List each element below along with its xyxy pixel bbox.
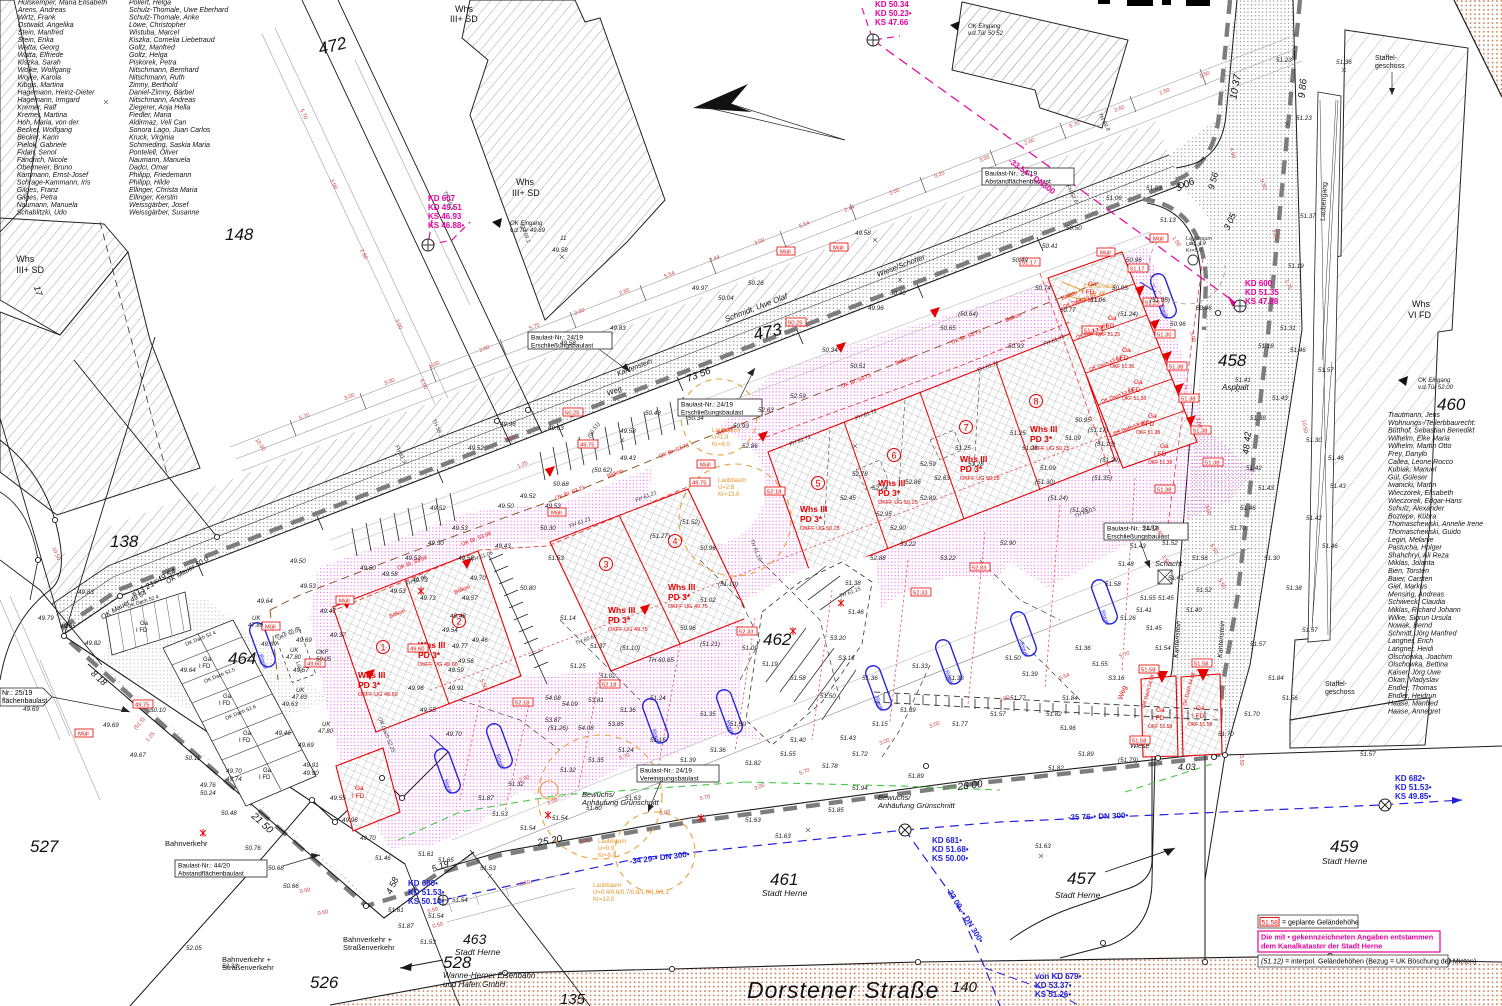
svg-text:I FD: I FD	[199, 664, 211, 670]
svg-text:KD 681•: KD 681•	[932, 836, 962, 845]
svg-text:PD 3*: PD 3*	[358, 680, 381, 690]
svg-text:Pielok, Gabriele: Pielok, Gabriele	[17, 142, 67, 149]
svg-text:Becker, Karin: Becker, Karin	[17, 135, 59, 142]
svg-text:Goltz, Helga: Goltz, Helga	[129, 52, 168, 59]
svg-text:Frey, Danylo: Frey, Danylo	[1388, 451, 1427, 458]
svg-text:50.48: 50.48	[645, 410, 661, 417]
svg-text:KS 50.14•: KS 50.14•	[408, 897, 444, 906]
svg-text:51.53: 51.53	[548, 555, 564, 562]
svg-text:Kibgis, Martina: Kibgis, Martina	[17, 82, 63, 89]
svg-text:51.84: 51.84	[1268, 675, 1284, 682]
svg-text:51.46: 51.46	[1240, 505, 1256, 512]
svg-text:457: 457	[1067, 869, 1096, 888]
svg-text:Miklas, Richard Johann: Miklas, Richard Johann	[1388, 607, 1461, 614]
svg-text:Stein, Manfred: Stein, Manfred	[18, 30, 65, 37]
svg-text:49.50: 49.50	[428, 540, 444, 547]
svg-text:52.33: 52.33	[739, 630, 754, 636]
svg-text:KD 600: KD 600	[1245, 279, 1273, 288]
svg-text:Olschowka, Bettina: Olschowka, Bettina	[1388, 662, 1448, 669]
svg-text:51.39: 51.39	[900, 707, 916, 714]
svg-text:49.46: 49.46	[472, 637, 488, 644]
svg-text:50.25: 50.25	[565, 411, 580, 417]
svg-text:51.36: 51.36	[1336, 59, 1352, 66]
svg-text:flächenbaulast: flächenbaulast	[2, 698, 47, 705]
svg-text:Daniel-Zimny, Bärbel: Daniel-Zimny, Bärbel	[129, 90, 194, 97]
svg-text:51.61: 51.61	[388, 907, 404, 914]
svg-text:49.70: 49.70	[446, 731, 462, 738]
svg-text:I FD: I FD	[136, 628, 148, 634]
svg-text:51.09: 51.09	[1040, 465, 1056, 472]
svg-text:Müll: Müll	[78, 732, 89, 738]
svg-text:Philipp, Hilde: Philipp, Hilde	[129, 180, 170, 187]
svg-text:Kiszka, Sarah: Kiszka, Sarah	[18, 60, 61, 67]
svg-text:TH 60.65: TH 60.65	[648, 657, 674, 664]
svg-text:Ga: Ga	[223, 694, 232, 700]
svg-text:III+ SD: III+ SD	[512, 188, 540, 198]
svg-text:53.81: 53.81	[588, 697, 604, 704]
svg-text:11: 11	[560, 235, 567, 242]
svg-text:49.53: 49.53	[390, 588, 406, 595]
svg-text:47.80: 47.80	[286, 655, 302, 661]
svg-text:Whs III: Whs III	[800, 504, 827, 514]
svg-text:S3.16: S3.16	[838, 655, 855, 662]
svg-text:51.32: 51.32	[560, 767, 576, 774]
svg-text:51.35: 51.35	[588, 757, 604, 764]
svg-text:Ga: Ga	[1108, 315, 1117, 322]
svg-text:463: 463	[463, 931, 487, 947]
svg-text:464: 464	[228, 649, 256, 668]
svg-text:52.86: 52.86	[905, 479, 921, 486]
svg-text:140: 140	[952, 979, 978, 996]
svg-text:49.52: 49.52	[468, 445, 484, 452]
svg-text:52.90: 52.90	[1000, 540, 1016, 547]
svg-text:47.80: 47.80	[318, 729, 334, 735]
svg-text:Naumann, Manuela: Naumann, Manuela	[17, 202, 78, 209]
svg-text:51.84: 51.84	[1062, 695, 1078, 702]
svg-text:51.82: 51.82	[1048, 765, 1064, 772]
svg-text:VI FD: VI FD	[1408, 310, 1432, 320]
svg-text:51.57: 51.57	[1318, 367, 1334, 374]
svg-text:49.96: 49.96	[342, 817, 358, 824]
svg-text:Stadt Herne: Stadt Herne	[1322, 856, 1368, 866]
svg-text:51.96: 51.96	[1060, 725, 1076, 732]
svg-text:49.53: 49.53	[300, 583, 316, 590]
svg-text:Straßenverkehr: Straßenverkehr	[343, 943, 395, 952]
svg-text:Wilke, Sigrun Ursula: Wilke, Sigrun Ursula	[1388, 615, 1451, 622]
svg-text:(51.17): (51.17)	[1088, 427, 1108, 434]
svg-text:OKFF UG 50.25: OKFF UG 50.25	[878, 500, 918, 506]
svg-text:Anhäufung Grünschnitt: Anhäufung Grünschnitt	[877, 801, 956, 810]
svg-text:Wojke, Karola: Wojke, Karola	[18, 75, 62, 82]
svg-text:Wieczorek, Edgar-Hans: Wieczorek, Edgar-Hans	[1388, 498, 1462, 505]
svg-text:50.96: 50.96	[700, 545, 716, 552]
svg-text:50.48: 50.48	[221, 810, 237, 817]
svg-text:51.19: 51.19	[1288, 263, 1304, 270]
svg-text:(50.64): (50.64)	[958, 311, 978, 318]
svg-text:Langner, Erich: Langner, Erich	[1388, 638, 1433, 645]
svg-text:51.31: 51.31	[1280, 325, 1296, 332]
svg-text:51.87: 51.87	[478, 795, 494, 802]
svg-text:Müll: Müll	[700, 463, 711, 469]
svg-text:Schulz-Thomale, Anke: Schulz-Thomale, Anke	[129, 15, 199, 22]
svg-text:Endler, Thomas: Endler, Thomas	[1388, 685, 1438, 692]
svg-text:461: 461	[770, 870, 798, 889]
svg-text:51.41: 51.41	[1136, 607, 1152, 614]
svg-text:51.85: 51.85	[828, 807, 844, 814]
svg-text:Dorstener Straße: Dorstener Straße	[747, 977, 939, 1003]
svg-text:49.43: 49.43	[620, 455, 636, 462]
svg-text:Staffel-: Staffel-	[1375, 55, 1398, 62]
svg-text:49.54: 49.54	[442, 627, 458, 634]
svg-text:und Hafen GmbH: und Hafen GmbH	[443, 980, 505, 989]
svg-text:Stadt Herne: Stadt Herne	[762, 888, 808, 898]
svg-text:Müll: Müll	[833, 246, 844, 252]
svg-text:49.55: 49.55	[330, 795, 346, 802]
svg-text:51.15: 51.15	[872, 721, 888, 728]
svg-text:I FD: I FD	[259, 775, 271, 781]
svg-text:Schablitzki, Udo: Schablitzki, Udo	[17, 210, 67, 217]
svg-text:Laubbaum: Laubbaum	[593, 883, 621, 889]
svg-text:49.70: 49.70	[226, 768, 242, 775]
svg-text:Baulast-Nr.: 44/20: Baulast-Nr.: 44/20	[178, 863, 230, 870]
svg-text:UK: UK	[290, 648, 299, 654]
svg-text:51.42: 51.42	[1306, 515, 1322, 522]
svg-text:OKF 51.30: OKF 51.30	[1110, 364, 1134, 370]
svg-text:50.93: 50.93	[733, 423, 749, 430]
svg-text:52.63: 52.63	[934, 475, 950, 482]
svg-text:KS 49.85•: KS 49.85•	[1395, 792, 1431, 801]
svg-text:Pastucha, Holger: Pastucha, Holger	[1388, 545, 1442, 552]
svg-text:51.36: 51.36	[1075, 645, 1091, 652]
svg-text:51.02: 51.02	[600, 673, 616, 680]
svg-text:Wilhelm, Elke Maria: Wilhelm, Elke Maria	[1388, 435, 1450, 442]
svg-text:OKFF UG 50.25: OKFF UG 50.25	[960, 476, 1000, 482]
svg-text:Vereinigungsbaulast: Vereinigungsbaulast	[640, 776, 699, 783]
svg-text:Miklas, Jolanta: Miklas, Jolanta	[1388, 560, 1434, 567]
svg-text:50.40: 50.40	[890, 290, 906, 297]
svg-text:49.96: 49.96	[408, 685, 424, 692]
svg-text:PD 3*: PD 3*	[800, 514, 823, 524]
svg-text:OKF 51.58: OKF 51.58	[1188, 722, 1212, 728]
svg-text:50.95: 50.95	[1075, 417, 1091, 424]
svg-text:KD 49.51: KD 49.51	[428, 203, 462, 212]
svg-text:51.43: 51.43	[1130, 543, 1146, 550]
svg-text:Pontelell, Oliver: Pontelell, Oliver	[129, 150, 179, 157]
svg-text:Aldirmaz, Veli Can: Aldirmaz, Veli Can	[128, 120, 186, 127]
svg-text:47.89: 47.89	[248, 623, 264, 629]
svg-text:51.78: 51.78	[822, 763, 838, 770]
svg-text:(51.27): (51.27)	[650, 533, 670, 540]
svg-text:50.93: 50.93	[1008, 343, 1024, 350]
svg-text:Kremer, Ralf: Kremer, Ralf	[17, 105, 57, 112]
svg-text:51.58: 51.58	[1105, 581, 1121, 588]
svg-text:50.65: 50.65	[940, 325, 956, 332]
svg-text:135: 135	[560, 991, 586, 1006]
svg-text:Whs III: Whs III	[608, 605, 635, 615]
svg-text:51.58: 51.58	[1194, 662, 1209, 668]
svg-text:U=0.4/0.6/0.7/0.8/1.0/1.0/1.1: U=0.4/0.6/0.7/0.8/1.0/1.0/1.1	[593, 890, 670, 896]
svg-text:Hoh, Maria, von der: Hoh, Maria, von der	[17, 120, 79, 127]
svg-text:52.05: 52.05	[186, 945, 202, 952]
svg-text:Ga: Ga	[203, 657, 212, 663]
svg-text:OKFF UG 49.75: OKFF UG 49.75	[668, 604, 708, 610]
svg-text:Gilges, Petra: Gilges, Petra	[17, 195, 58, 202]
svg-text:51.87: 51.87	[398, 923, 414, 930]
svg-text:50.05: 50.05	[316, 657, 332, 663]
svg-text:52.63: 52.63	[758, 407, 774, 414]
svg-text:49.43: 49.43	[495, 543, 511, 550]
svg-text:51.63: 51.63	[775, 833, 791, 840]
svg-text:(51.52): (51.52)	[680, 519, 700, 526]
svg-text:Kruck, Virginia: Kruck, Virginia	[129, 135, 174, 142]
svg-text:KS 46.88•: KS 46.88•	[428, 221, 464, 230]
svg-text:54.09: 54.09	[562, 701, 578, 708]
svg-text:(51.79): (51.79)	[1118, 757, 1138, 764]
svg-text:KD 680•: KD 680•	[408, 879, 438, 888]
svg-text:Ga: Ga	[263, 768, 272, 774]
svg-text:51.54: 51.54	[552, 815, 568, 822]
svg-text:52.33: 52.33	[222, 963, 238, 970]
svg-text:49.75: 49.75	[135, 703, 150, 709]
svg-text:Nowak, Bernd: Nowak, Bernd	[1388, 623, 1433, 630]
svg-text:Watta, Georg: Watta, Georg	[18, 45, 60, 52]
svg-text:51.30: 51.30	[1264, 555, 1280, 562]
svg-text:geschoss: geschoss	[1375, 63, 1405, 70]
svg-text:KD 51.53•: KD 51.53•	[408, 888, 445, 897]
svg-text:51.53: 51.53	[492, 811, 508, 818]
svg-text:51.77: 51.77	[1010, 695, 1026, 702]
svg-text:Dadci, Omar: Dadci, Omar	[129, 165, 169, 172]
svg-text:S3.16: S3.16	[1108, 675, 1125, 682]
svg-text:50.96: 50.96	[1126, 257, 1142, 264]
svg-text:Kr=12.0: Kr=12.0	[593, 897, 615, 903]
svg-text:52.45: 52.45	[840, 495, 856, 502]
svg-text:51.52: 51.52	[1162, 540, 1178, 547]
svg-text:51.42: 51.42	[1246, 465, 1262, 472]
svg-text:Piskorek, Petra: Piskorek, Petra	[129, 60, 177, 67]
svg-text:51.43: 51.43	[840, 735, 856, 742]
svg-text:49.63: 49.63	[282, 701, 298, 708]
svg-text:49.58: 49.58	[552, 247, 568, 254]
svg-text:51.36: 51.36	[710, 747, 726, 754]
svg-text:51.40: 51.40	[1186, 607, 1202, 614]
svg-text:(51.12) = interpol. Geländehöh: (51.12) = interpol. Geländehöhen (Bezug …	[1261, 959, 1476, 966]
svg-text:KD 51.35: KD 51.35	[1245, 288, 1279, 297]
svg-text:53.22: 53.22	[940, 555, 956, 562]
svg-text:49.69: 49.69	[103, 722, 119, 729]
svg-text:49.83: 49.83	[78, 589, 94, 596]
svg-text:Fidan, Senol: Fidan, Senol	[17, 150, 57, 157]
svg-text:49.77: 49.77	[452, 643, 468, 650]
svg-text:49.91: 49.91	[448, 685, 464, 692]
svg-text:(51.30): (51.30)	[1035, 479, 1055, 486]
svg-text:52.59: 52.59	[920, 461, 936, 468]
svg-text:49.74: 49.74	[226, 776, 242, 783]
svg-text:51.58: 51.58	[1132, 739, 1147, 745]
svg-text:Giel, Markus: Giel, Markus	[1388, 584, 1428, 591]
svg-text:UK: UK	[322, 722, 331, 728]
svg-text:50.24: 50.24	[200, 790, 216, 797]
svg-text:51.43: 51.43	[1258, 485, 1274, 492]
svg-text:51.55: 51.55	[780, 751, 796, 758]
svg-text:Callea, Leone Rocco: Callea, Leone Rocco	[1388, 459, 1453, 466]
svg-text:51.46: 51.46	[848, 609, 864, 616]
svg-text:50.96: 50.96	[1196, 305, 1212, 312]
svg-text:Kiszka, Cornelia Liebetraud: Kiszka, Cornelia Liebetraud	[129, 37, 216, 44]
svg-text:U=0.9: U=0.9	[598, 846, 615, 852]
svg-text:50.10: 50.10	[150, 707, 166, 714]
svg-text:5.50: 5.50	[1238, 755, 1244, 766]
svg-text:PD 3*: PD 3*	[1030, 434, 1053, 444]
svg-text:OKF: OKF	[316, 650, 329, 656]
svg-text:51.36: 51.36	[620, 707, 636, 714]
svg-text:KS 46.93: KS 46.93	[428, 212, 462, 221]
svg-text:51.45: 51.45	[1146, 625, 1162, 632]
svg-text:Legin, Melanie: Legin, Melanie	[1388, 537, 1434, 544]
svg-text:Ga: Ga	[1156, 707, 1165, 714]
svg-text:51.70: 51.70	[1244, 711, 1260, 718]
svg-text:51.38: 51.38	[1193, 429, 1208, 435]
svg-text:v.d.Tür 52.00: v.d.Tür 52.00	[1418, 385, 1454, 391]
svg-text:Bütthof, Sebastian Benedikt: Bütthof, Sebastian Benedikt	[1388, 428, 1475, 435]
svg-text:KS 50.00•: KS 50.00•	[932, 854, 968, 863]
svg-text:Nitschmann, Bernhard: Nitschmann, Bernhard	[129, 67, 200, 74]
svg-text:49.58: 49.58	[620, 428, 636, 435]
svg-text:50.25: 50.25	[788, 321, 803, 327]
svg-text:49.76: 49.76	[200, 782, 216, 789]
svg-text:51.38: 51.38	[1286, 585, 1302, 592]
svg-text:49.69: 49.69	[298, 742, 314, 749]
svg-text:Schiweck, Claudia: Schiweck, Claudia	[1388, 599, 1445, 606]
svg-text:51.70: 51.70	[1230, 525, 1246, 532]
svg-text:51.30: 51.30	[1157, 333, 1172, 339]
svg-text:49.67: 49.67	[130, 752, 146, 759]
svg-text:51.18: 51.18	[1258, 343, 1274, 350]
svg-text:Ga: Ga	[355, 785, 364, 792]
svg-text:51.56: 51.56	[1192, 555, 1208, 562]
svg-text:UK: UK	[296, 688, 305, 694]
svg-text:49.57: 49.57	[462, 595, 478, 602]
svg-text:I FD: I FD	[239, 738, 251, 744]
svg-text:(51.21): (51.21)	[700, 641, 720, 648]
svg-text:49.69: 49.69	[296, 637, 312, 644]
svg-text:I FD: I FD	[219, 701, 231, 707]
svg-text:Ga: Ga	[1134, 379, 1143, 386]
svg-text:(51.24): (51.24)	[1048, 495, 1068, 502]
svg-text:9 86: 9 86	[1297, 78, 1310, 99]
svg-text:OKFF UG 50.25: OKFF UG 50.25	[800, 526, 840, 532]
svg-text:UK: UK	[252, 616, 261, 622]
svg-text:49.58: 49.58	[382, 571, 398, 578]
svg-text:PD 3*: PD 3*	[608, 615, 631, 625]
svg-text:50.80: 50.80	[520, 585, 536, 592]
svg-text:Whs: Whs	[16, 254, 35, 264]
svg-text:49.46: 49.46	[275, 730, 291, 737]
svg-text:49.91: 49.91	[303, 762, 319, 769]
svg-text:Ga: Ga	[1160, 443, 1169, 450]
svg-text:Fiedler, Maria: Fiedler, Maria	[129, 112, 172, 119]
svg-text:49.52: 49.52	[430, 505, 446, 512]
svg-text:Weissgärber, Josef: Weissgärber, Josef	[129, 202, 189, 209]
svg-text:51.19: 51.19	[762, 661, 778, 668]
svg-text:52.24: 52.24	[872, 485, 888, 492]
svg-text:Löwe, Christopher: Löwe, Christopher	[129, 22, 186, 29]
svg-text:Baulast-Nr.: 24/19: Baulast-Nr.: 24/19	[681, 402, 733, 409]
svg-text:54.08: 54.08	[578, 725, 594, 732]
svg-text:geschoss: geschoss	[1325, 689, 1355, 696]
svg-text:50.68: 50.68	[268, 865, 284, 872]
svg-text:Whs III: Whs III	[358, 670, 385, 680]
svg-text:51.03: 51.03	[1146, 185, 1162, 192]
svg-text:50.68: 50.68	[553, 481, 569, 488]
svg-text:Kr=13.0: Kr=13.0	[718, 492, 740, 498]
svg-text:526: 526	[310, 973, 339, 992]
svg-text:KD 50.23•: KD 50.23•	[875, 9, 912, 18]
svg-text:Schmitt, Jörg Manfred: Schmitt, Jörg Manfred	[1388, 630, 1458, 637]
svg-text:49.55: 49.55	[420, 707, 436, 714]
svg-text:51.72: 51.72	[852, 751, 868, 758]
svg-text:OKF 51.58: OKF 51.58	[1148, 724, 1172, 730]
svg-text:Schulz, Alexander: Schulz, Alexander	[1388, 506, 1445, 513]
svg-text:51.38: 51.38	[1250, 415, 1266, 422]
svg-text:49.37: 49.37	[330, 632, 346, 639]
svg-text:51.53: 51.53	[420, 939, 436, 946]
svg-text:Zimny, Berthold: Zimny, Berthold	[128, 82, 179, 89]
svg-text:Staffel-: Staffel-	[1325, 681, 1348, 688]
svg-text:49.75: 49.75	[692, 481, 707, 487]
svg-text:Shahchryi, Ali Reza: Shahchryi, Ali Reza	[1388, 552, 1449, 559]
svg-text:3: 3	[603, 560, 608, 570]
svg-text:Nr.: 25/19: Nr.: 25/19	[2, 690, 32, 697]
svg-text:50.30: 50.30	[540, 525, 556, 532]
svg-text:51.63: 51.63	[1035, 843, 1051, 850]
svg-text:Obermeier, Bruno: Obermeier, Bruno	[17, 165, 72, 172]
svg-text:50.34: 50.34	[822, 347, 838, 354]
svg-text:Müll: Müll	[1100, 251, 1111, 257]
svg-text:Haase, Manfred: Haase, Manfred	[1388, 701, 1439, 708]
svg-text:51.02: 51.02	[700, 597, 716, 604]
svg-text:50.51: 50.51	[850, 363, 866, 370]
svg-text:52.95: 52.95	[876, 511, 892, 518]
svg-text:50.49: 50.49	[1012, 257, 1028, 264]
svg-text:Stadt Herne: Stadt Herne	[1055, 890, 1101, 900]
svg-text:49.96: 49.96	[500, 421, 516, 428]
svg-text:49.47: 49.47	[320, 608, 336, 615]
svg-text:49.63: 49.63	[548, 425, 564, 432]
svg-text:OKFF UG 49.60: OKFF UG 49.60	[358, 692, 398, 698]
svg-text:Mensing, Andreas: Mensing, Andreas	[1388, 591, 1445, 598]
svg-text:49.64: 49.64	[257, 598, 273, 605]
svg-text:50.04: 50.04	[718, 295, 734, 302]
svg-text:Gül, Güleser: Gül, Güleser	[1388, 474, 1428, 481]
svg-text:Schmieding, Saskia Maria: Schmieding, Saskia Maria	[129, 142, 210, 149]
svg-text:Sonora Lago, Juan Carlos: Sonora Lago, Juan Carlos	[129, 127, 211, 134]
svg-text:Boztepe, Kübra: Boztepe, Kübra	[1388, 513, 1436, 520]
svg-text:Arens, Andreas: Arens, Andreas	[17, 7, 66, 14]
svg-text:4.03: 4.03	[1178, 762, 1196, 772]
svg-text:51.09: 51.09	[1065, 435, 1081, 442]
svg-text:Wirtz, Frank: Wirtz, Frank	[18, 15, 56, 22]
svg-text:52.86: 52.86	[742, 443, 758, 450]
svg-text:51.19: 51.19	[1190, 240, 1206, 247]
svg-text:49.58: 49.58	[560, 340, 576, 347]
svg-text:50.95: 50.95	[1112, 285, 1128, 292]
svg-text:51.55: 51.55	[1140, 595, 1156, 602]
svg-text:Haase, Annegret: Haase, Annegret	[1388, 708, 1441, 715]
svg-text:51.48: 51.48	[1118, 561, 1134, 568]
svg-text:Whs III: Whs III	[668, 582, 695, 592]
svg-text:49.48: 49.48	[450, 613, 466, 620]
